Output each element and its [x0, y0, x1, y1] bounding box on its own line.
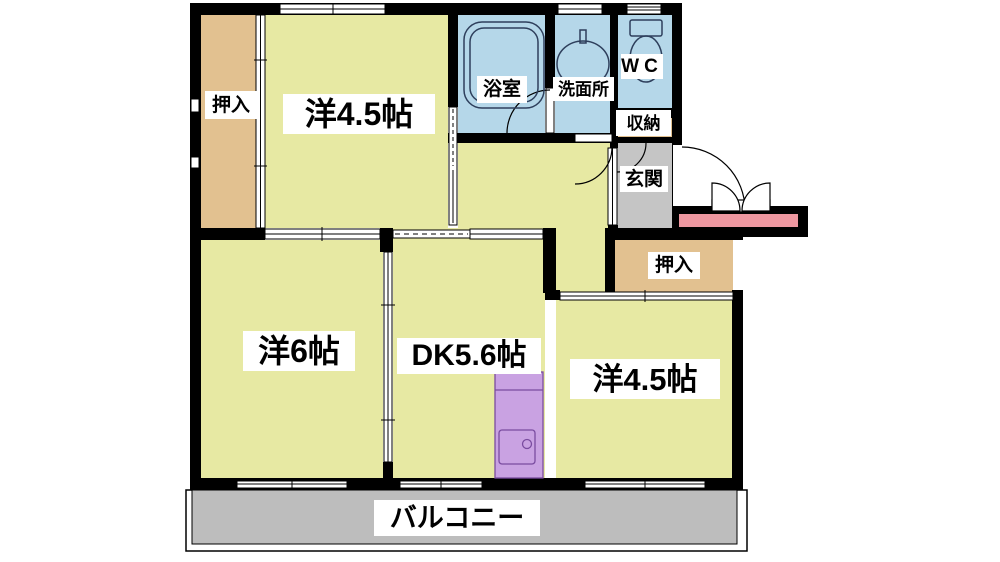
floorplan: 押入 洋4.5帖 浴室 洗面所 WC 収納 玄関 押入 洋6帖 DK5.6帖 洋…	[0, 0, 1000, 562]
door-washroom-leaf	[575, 134, 612, 142]
washroom-label: 洗面所	[553, 77, 614, 101]
bathroom-label: 浴室	[477, 76, 527, 103]
wall-closet-right-top	[605, 228, 743, 240]
closet-right-label: 押入	[648, 252, 700, 279]
entrance-door-petal-right	[742, 183, 770, 211]
wall-right-lower	[732, 290, 743, 490]
bathroom-floor	[458, 15, 545, 133]
wall-partition-bottom-post	[383, 462, 393, 490]
door-entrance-gap	[673, 145, 682, 206]
wall-left	[190, 3, 201, 490]
room-fills	[201, 15, 733, 478]
balcony-label: バルコニー	[374, 500, 540, 536]
wall-closet-right-left	[605, 237, 615, 293]
entrance-door-petal-left	[712, 183, 740, 211]
vent-left-wall-2	[191, 157, 199, 168]
closet-top-left-label: 押入	[205, 91, 257, 119]
wall-room-top-right	[448, 15, 458, 107]
wall-dk-corridor	[543, 228, 556, 293]
dining-kitchen-label: DK5.6帖	[397, 338, 541, 374]
wall-closet-tl-bottom	[190, 228, 265, 240]
vent-left-wall-1	[191, 99, 199, 112]
toilet-label: WC	[621, 54, 663, 79]
kitchen-counter	[495, 372, 543, 478]
wall-room-right-corner	[545, 290, 560, 300]
closet-top-left-floor	[201, 15, 257, 228]
kitchen-unit	[495, 372, 543, 478]
window-wc-louver	[627, 4, 661, 14]
wall-top	[190, 3, 682, 15]
storage-label: 収納	[616, 110, 671, 136]
room-right-label: 洋4.5帖	[570, 359, 720, 399]
wall-partition-top-post	[380, 228, 393, 252]
washroom-floor	[555, 15, 610, 133]
room-left-label: 洋6帖	[243, 331, 355, 371]
porch-step	[679, 214, 798, 227]
room-top-label: 洋4.5帖	[283, 94, 435, 134]
entrance-label: 玄関	[620, 166, 668, 192]
wall-storage-bottom	[610, 137, 672, 143]
